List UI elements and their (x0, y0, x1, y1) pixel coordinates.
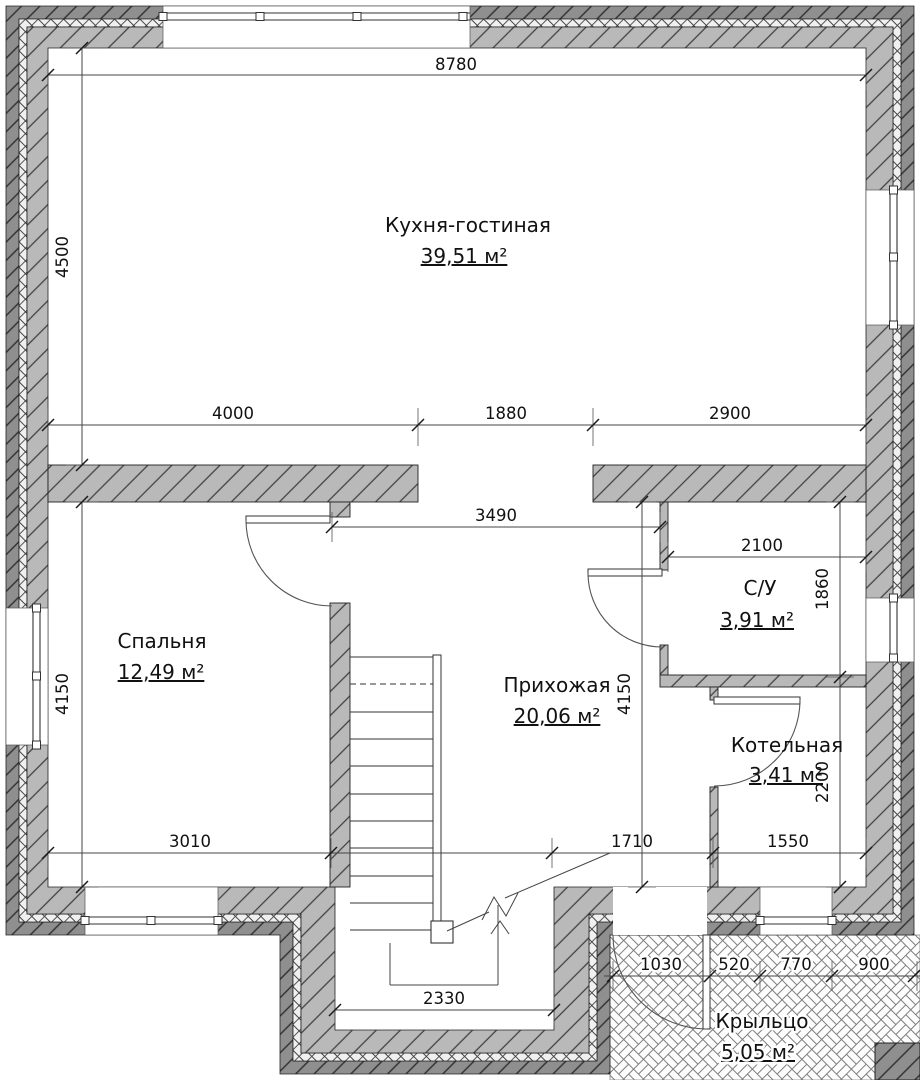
window-bedroom-south (81, 887, 222, 935)
floor-plan-page: 8780 4000 1880 2900 3490 2100 3010 1710 … (0, 0, 920, 1080)
wall-kitchen-south-left (48, 465, 418, 502)
room-label-bathroom-area: 3,91 м² (720, 608, 794, 632)
dim-kitchen-seg1: 4000 (212, 404, 254, 423)
dim-bedroom-depth: 4150 (53, 673, 72, 715)
window-kitchen-north (159, 6, 470, 48)
stair-stringer (433, 655, 441, 935)
window-boiler-south (756, 887, 836, 935)
room-label-hallway-name: Прихожая (503, 673, 610, 697)
room-label-bedroom-name: Спальня (118, 629, 207, 653)
floor-plan-drawing: 8780 4000 1880 2900 3490 2100 3010 1710 … (0, 0, 920, 1080)
dim-hall-top-width: 3490 (475, 506, 517, 525)
room-label-hallway-area: 20,06 м² (514, 704, 601, 728)
entrance-opening (613, 887, 707, 935)
porch-corner-block (875, 1043, 920, 1080)
dim-kitchen-depth: 4500 (53, 236, 72, 278)
dim-boiler-width: 1550 (767, 832, 809, 851)
wall-bedroom-partition-stub (330, 502, 350, 517)
dim-hall-depth: 4150 (615, 673, 634, 715)
room-label-boiler-area: 3,41 м² (749, 763, 823, 787)
dim-porch-seg2: 520 (718, 955, 750, 974)
stair-newel-post (431, 921, 453, 943)
dim-overall-width: 8780 (435, 55, 477, 74)
dim-porch-seg3: 770 (780, 955, 812, 974)
dim-porch-seg4: 900 (858, 955, 890, 974)
room-label-porch-name: Крыльцо (715, 1009, 808, 1033)
wall-kitchen-south-right (593, 465, 866, 502)
window-kitchen-east (866, 186, 914, 329)
dim-su-width: 2100 (741, 536, 783, 555)
room-label-kitchen-living-area: 39,51 м² (421, 244, 508, 268)
room-label-kitchen-living-name: Кухня-гостиная (385, 213, 551, 237)
dim-bedroom-width: 3010 (169, 832, 211, 851)
window-bathroom-east (866, 594, 914, 662)
dim-kitchen-seg2: 2900 (709, 404, 751, 423)
room-label-bathroom-name: С/У (744, 576, 777, 600)
room-label-bedroom-area: 12,49 м² (118, 660, 205, 684)
window-bedroom-west (6, 604, 48, 749)
dim-su-depth: 1860 (813, 568, 832, 610)
wall-bedroom-partition (330, 603, 350, 887)
dim-stair-well-width: 2330 (423, 989, 465, 1008)
room-label-boiler-name: Котельная (731, 733, 843, 757)
dim-entry-span: 1710 (611, 832, 653, 851)
dim-kitchen-opening: 1880 (485, 404, 527, 423)
wall-boiler-partition (710, 787, 718, 887)
wall-bathroom-partition-upper (660, 502, 668, 570)
room-label-porch-area: 5,05 м² (721, 1040, 795, 1064)
dim-porch-seg1: 1030 (640, 955, 682, 974)
wall-bathroom-partition-lower (660, 645, 668, 675)
